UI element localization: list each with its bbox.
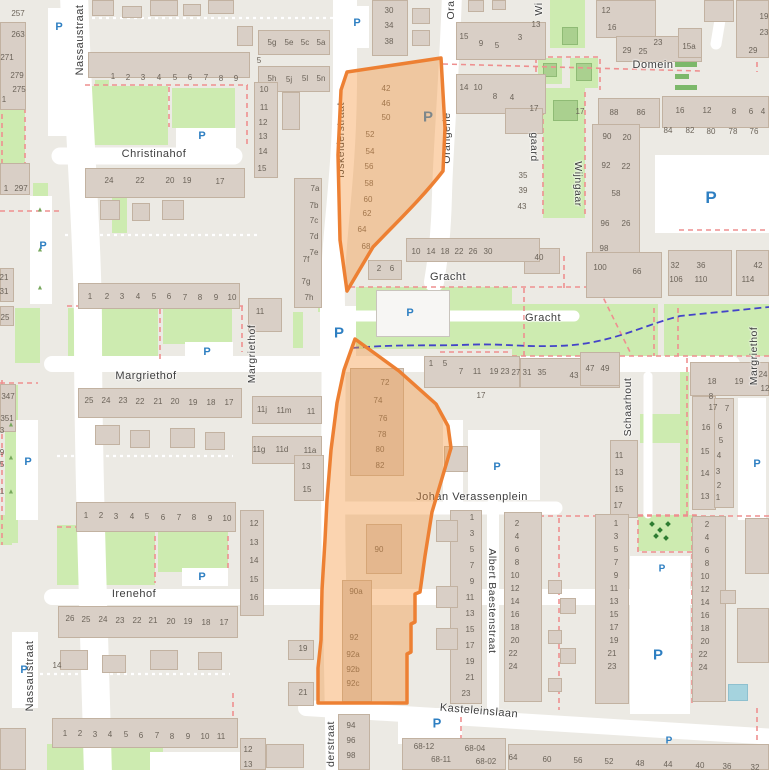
house-number: 4 [157,74,161,82]
house-number: 68 [362,243,371,251]
house-number: 4 [130,513,134,521]
house-number: 7g [302,278,311,286]
building [504,512,542,702]
house-number: 40 [696,762,705,770]
house-number: 50 [382,114,391,122]
parking-icon: P [705,188,716,208]
house-number: 11a [304,447,317,455]
parking-icon: P [39,240,46,252]
house-number: 58 [612,190,621,198]
house-number: 17 [220,619,229,627]
house-number: 257 [11,10,24,18]
house-number: 26 [66,615,75,623]
house-number: 16 [702,424,711,432]
house-number: 64 [358,226,367,234]
parking-area [468,430,540,500]
building [548,630,562,644]
street-label: Domein [633,59,674,71]
house-number: 40 [535,254,544,262]
house-number: 21 [466,674,475,682]
map-canvas[interactable]: ▲▲▲▲▲▲2572632712792751129721312534735139… [0,0,769,770]
house-number: 10 [474,84,483,92]
house-number: 58 [365,180,374,188]
building [412,30,430,46]
house-number: 14 [259,148,268,156]
house-number: 5e [285,39,294,47]
house-number: 78 [378,431,387,439]
house-number: 8 [493,93,497,101]
house-number: 23 [760,29,769,37]
house-number: 92b [346,666,359,674]
house-number: 11d [276,446,289,454]
building [548,678,562,692]
house-number: 5 [443,360,447,368]
house-number: 2 [105,293,109,301]
street-label: Schaarhout [622,378,634,437]
house-number: 82 [686,127,695,135]
house-number: 26 [469,248,478,256]
house-number: 7a [311,185,320,193]
hedge-bar [675,62,697,67]
house-number: 7h [305,294,314,302]
house-number: 12 [602,7,611,15]
house-number: 3 [518,34,522,42]
house-number: 5 [124,731,128,739]
building [736,250,769,296]
building [237,26,253,46]
house-number: 24 [99,616,108,624]
house-number: 25 [85,397,94,405]
building [100,200,120,220]
house-number: 11 [610,585,618,593]
house-number: 6 [390,265,394,273]
house-number: 11 [615,452,623,460]
house-number: 347 [1,393,14,401]
house-number: 38 [385,38,394,46]
house-number: 15 [250,576,259,584]
house-number: 10 [412,248,421,256]
building [208,0,234,14]
house-number: 13 [615,469,624,477]
parking-icon: P [433,716,442,731]
house-number: 43 [518,203,527,211]
house-number: 13 [466,610,475,618]
house-number: 2 [78,730,82,738]
house-number: 106 [669,276,682,284]
house-number: 54 [366,148,375,156]
house-number: 8 [198,294,202,302]
parking-area [738,398,766,520]
house-number: 21 [154,398,163,406]
house-number: 22 [622,163,631,171]
green-area [163,308,232,344]
house-number: 18 [511,624,520,632]
house-number: 92 [350,634,359,642]
house-number: 7 [177,514,181,522]
house-number: 15 [460,33,469,41]
street-label: Margriethof [748,327,760,386]
house-number: 24 [102,397,111,405]
house-number: 1 [0,488,4,496]
house-number: 21 [608,650,617,658]
hedge-bar [675,85,697,90]
parking-icon: P [353,17,360,29]
house-number: 62 [363,210,372,218]
house-number: 5 [145,513,149,521]
house-number: 8 [170,733,174,741]
building [350,368,404,476]
house-number: 7d [310,233,319,241]
house-number: 114 [742,276,755,284]
building [60,650,88,670]
house-number: 14 [250,557,259,565]
house-number: 8 [192,514,196,522]
house-number: 19 [466,658,475,666]
house-number: 66 [633,268,642,276]
building [150,0,178,16]
house-number: 12 [511,585,520,593]
house-number: 19 [189,399,198,407]
house-number: 1 [84,512,88,520]
house-number: 22 [136,398,145,406]
house-number: 17 [477,392,486,400]
house-number: 4 [717,452,721,460]
house-number: 13 [259,133,268,141]
house-number: 10 [228,294,237,302]
house-number: 5 [173,74,177,82]
building [122,6,142,18]
parking-icon: P [423,109,433,126]
house-number: 16 [701,612,710,620]
house-number: 20 [623,134,632,142]
house-number: 3 [716,468,720,476]
house-number: 7 [155,732,159,740]
house-number: 24 [509,663,518,671]
house-number: 23 [654,39,663,47]
house-number: 18 [708,378,717,386]
street-label: Irenehof [112,588,156,600]
house-number: 5 [614,546,618,554]
building [366,524,402,574]
house-number: 4 [515,533,519,541]
house-number: 5h [268,75,277,83]
house-number: 94 [347,722,356,730]
house-number: 18 [202,619,211,627]
house-number: 5 [257,57,261,65]
building [205,432,225,450]
house-number: 76 [750,128,759,136]
house-number: 5c [301,39,309,47]
house-number: 6 [749,108,753,116]
house-number: 22 [699,651,708,659]
house-number: 11 [260,104,268,112]
house-number: 8 [705,560,709,568]
street-label: Orangerie [441,112,453,163]
house-number: 16 [608,24,617,32]
parking-icon: P [493,461,500,473]
building [412,8,430,24]
house-number: 24 [699,664,708,672]
house-number: 20 [167,618,176,626]
green-area [68,308,158,356]
house-number: 15 [610,611,619,619]
green-area [158,525,228,572]
house-number: 5n [317,75,326,83]
house-number: 9 [208,515,212,523]
house-number: 11 [473,368,481,376]
house-number: 15a [682,43,695,51]
house-number: 279 [10,72,23,80]
house-number: 9 [186,733,190,741]
house-number: 1 [470,514,474,522]
house-number: 12 [244,746,253,754]
house-number: 3 [470,530,474,538]
house-number: 12 [259,119,268,127]
house-number: 8 [732,108,736,116]
house-number: 14 [427,248,436,256]
house-number: 9 [234,75,238,83]
house-number: 263 [11,31,24,39]
house-number: 11g [253,446,266,454]
house-number: 39 [519,187,528,195]
green-area [0,108,25,165]
house-number: 23 [501,368,510,376]
house-number: 19 [760,13,769,21]
green-area [0,515,12,545]
house-number: 1 [4,185,8,193]
hedge-bar [675,74,689,79]
house-number: 17 [216,178,225,186]
house-number: 7 [470,562,474,570]
house-number: 10 [223,515,232,523]
street-label: Christinahof [122,148,187,160]
house-number: 16 [676,107,685,115]
house-number: 6 [515,546,519,554]
parking-area [630,556,690,714]
house-number: 17 [614,502,623,510]
house-number: 17 [530,105,539,113]
building [444,446,468,472]
parking-icon: P [753,458,760,470]
house-number: 3 [614,533,618,541]
house-number: 17 [709,404,718,412]
house-number: 4 [510,94,514,102]
house-number: 3 [141,74,145,82]
house-number: 23 [116,617,125,625]
house-number: 36 [697,262,706,270]
house-number: 15 [303,486,312,494]
street-label: Albert Baestenstraat [486,548,498,653]
house-number: 297 [14,185,27,193]
house-number: 60 [543,756,552,764]
house-number: 30 [385,7,394,15]
parking-icon: P [203,346,210,358]
hedge-square [562,27,578,45]
house-number: 90 [375,546,384,554]
green-area [172,88,235,128]
house-number: 52 [605,758,614,766]
house-number: 21 [0,274,8,282]
house-number: 13 [302,463,311,471]
house-number: 100 [593,264,606,272]
street-label: Margriethof [246,325,258,384]
house-number: 92c [347,680,360,688]
house-number: 92a [346,651,359,659]
house-number: 18 [207,399,216,407]
house-number: 19 [490,368,499,376]
house-number: 4 [108,731,112,739]
green-area [15,308,40,363]
house-number: 31 [523,369,532,377]
parking-icon: P [198,130,205,142]
house-number: 5g [268,39,277,47]
building [0,728,26,770]
tree-icon: ▲ [8,489,15,496]
house-number: 9 [0,449,4,457]
house-number: 46 [382,100,391,108]
house-number: 68-02 [476,758,496,766]
house-number: 4 [136,293,140,301]
building [468,0,484,12]
house-number: 47 [586,365,595,373]
house-number: 19 [299,645,308,653]
street-label: Wi [533,2,545,15]
house-number: 80 [376,446,385,454]
house-number: 74 [374,397,383,405]
parking-icon: P [334,325,344,342]
building [436,586,458,608]
house-number: 25 [639,48,648,56]
house-number: 3 [93,731,97,739]
house-number: 23 [608,663,617,671]
house-number: 8 [515,559,519,567]
building [132,203,150,221]
building [668,250,732,296]
house-number: 20 [511,637,520,645]
green-area [640,414,686,443]
house-number: 7 [183,294,187,302]
parking-icon: P [20,664,27,676]
building [595,514,629,704]
green-area [293,312,303,348]
house-number: 19 [735,378,744,386]
house-number: 35 [519,172,528,180]
house-number: 78 [729,128,738,136]
house-number: 29 [749,47,758,55]
house-number: 22 [136,177,145,185]
house-number: 15 [258,165,267,173]
house-number: 42 [382,85,391,93]
house-number: 2 [377,265,381,273]
house-number: 271 [0,54,13,62]
building [692,516,726,702]
house-number: 5 [152,293,156,301]
house-number: 48 [636,760,645,768]
house-number: 14 [53,662,62,670]
house-number: 1 [2,96,6,104]
house-number: 6 [718,423,722,431]
house-number: 16 [250,594,259,602]
house-number: 64 [509,754,518,762]
house-number: 5 [719,437,723,445]
house-number: 15 [466,626,475,634]
house-number: 7b [310,202,319,210]
house-number: 10 [511,572,520,580]
house-number: 11 [256,308,264,316]
house-number: 1 [614,520,618,528]
house-number: 7 [459,368,463,376]
building [436,628,458,650]
house-number: 20 [701,638,710,646]
house-number: 351 [0,415,13,423]
house-number: 1 [111,73,115,81]
house-number: 84 [664,127,673,135]
house-number: 49 [601,365,610,373]
building [92,0,114,16]
house-number: 92 [602,162,611,170]
house-number: 14 [511,598,520,606]
building [294,178,322,308]
building [368,260,402,280]
building [720,590,736,604]
parking-icon: P [55,21,62,33]
house-number: 21 [299,689,308,697]
house-number: 43 [570,372,579,380]
house-number: 8 [709,393,713,401]
house-number: 35 [538,369,547,377]
house-number: 14 [701,470,710,478]
house-number: 2 [717,482,721,490]
building [436,520,458,542]
house-number: 9 [614,572,618,580]
house-number: 18 [441,248,450,256]
house-number: 25 [82,616,91,624]
building [102,655,126,673]
parking-area [176,128,236,148]
house-number: 3 [0,427,4,435]
house-number: 27 [512,369,521,377]
house-number: 17 [576,108,585,116]
tree-icon: ▲ [8,455,15,462]
house-number: 29 [623,47,632,55]
street-label: Gracht [430,271,466,283]
house-number: 22 [133,617,142,625]
parking-icon: P [659,564,666,575]
hedge-square [553,100,578,121]
street-label: Johan Verassenplein [416,491,528,503]
house-number: 8 [219,75,223,83]
house-number: 9 [470,578,474,586]
house-number: 10 [201,733,210,741]
house-number: 13 [610,598,619,606]
house-number: 96 [601,220,610,228]
house-number: 11j [257,406,267,414]
hedge-square [576,63,592,81]
house-number: 90 [603,133,612,141]
house-number: 11m [277,407,292,415]
building [198,652,222,670]
house-number: 13 [701,493,710,501]
house-number: 82 [376,462,385,470]
tree-icon: ▲ [37,207,44,214]
house-number: 7e [310,249,319,257]
water-basin [728,684,748,701]
house-number: 110 [695,276,708,284]
house-number: 9 [479,40,483,48]
building [586,252,662,298]
building [95,425,120,445]
house-number: 14 [701,599,710,607]
